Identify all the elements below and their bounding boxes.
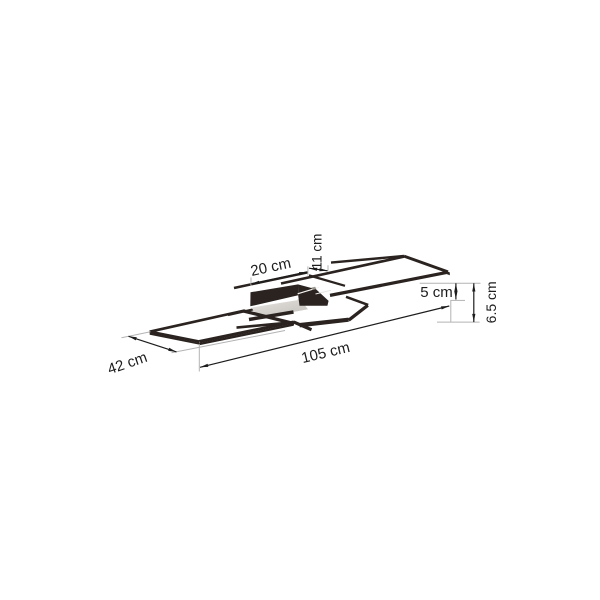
svg-text:11 cm: 11 cm [310,234,325,270]
svg-text:6.5 cm: 6.5 cm [483,281,499,323]
svg-text:5 cm: 5 cm [420,284,453,301]
